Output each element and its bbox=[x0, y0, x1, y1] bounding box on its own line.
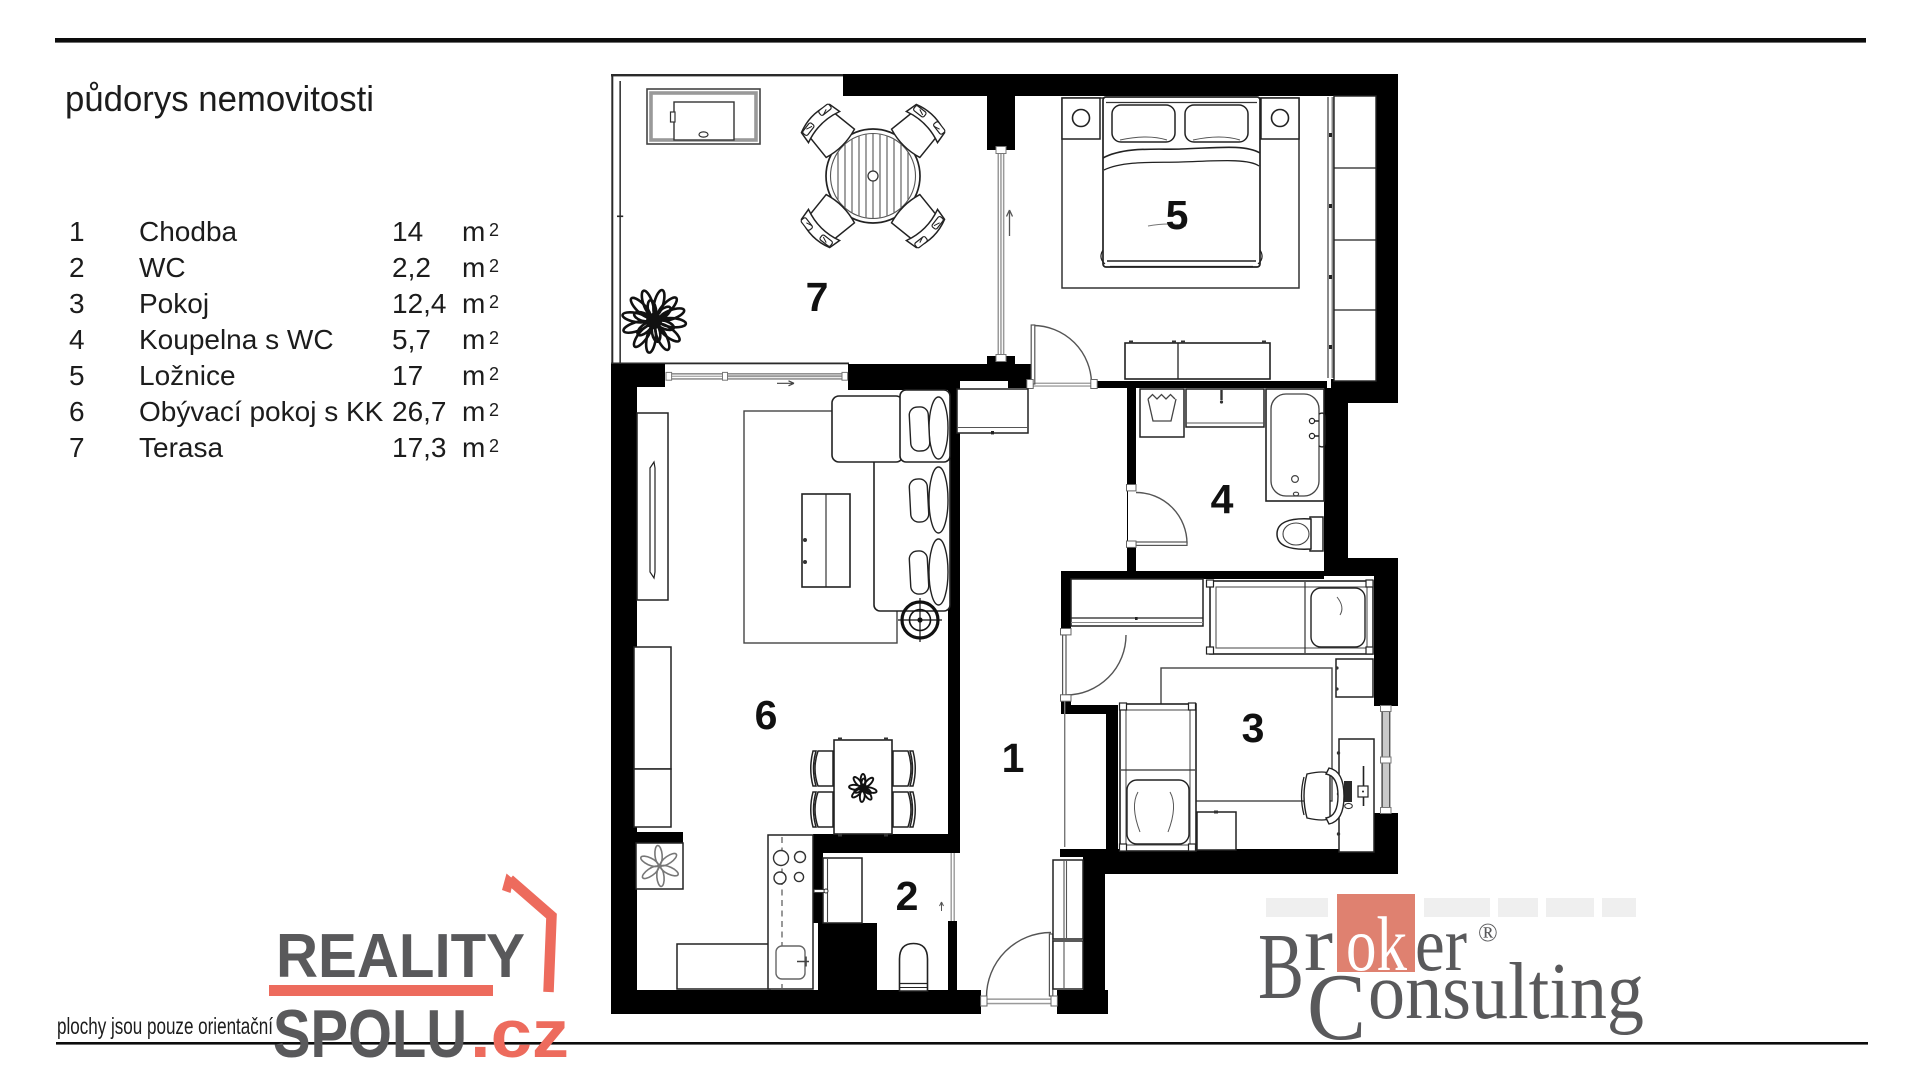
svg-text:4: 4 bbox=[69, 324, 85, 355]
svg-text:17,3: 17,3 bbox=[392, 432, 447, 463]
svg-text:3: 3 bbox=[69, 288, 85, 319]
svg-text:2: 2 bbox=[69, 252, 85, 283]
svg-text:26,7: 26,7 bbox=[392, 396, 447, 427]
svg-text:2: 2 bbox=[896, 873, 919, 919]
svg-text:7: 7 bbox=[69, 432, 85, 463]
svg-text:2: 2 bbox=[489, 364, 499, 384]
svg-text:4: 4 bbox=[1211, 476, 1234, 522]
svg-text:Obývací pokoj s KK: Obývací pokoj s KK bbox=[139, 396, 384, 427]
svg-text:12,4: 12,4 bbox=[392, 288, 447, 319]
svg-text:m: m bbox=[462, 252, 485, 283]
svg-text:2: 2 bbox=[489, 436, 499, 456]
svg-text:1: 1 bbox=[69, 216, 85, 247]
svg-text:m: m bbox=[462, 216, 485, 247]
svg-text:2: 2 bbox=[489, 328, 499, 348]
svg-text:m: m bbox=[462, 324, 485, 355]
svg-text:5,7: 5,7 bbox=[392, 324, 431, 355]
svg-text:m: m bbox=[462, 288, 485, 319]
svg-text:B: B bbox=[1258, 915, 1304, 1019]
svg-text:WC: WC bbox=[139, 252, 186, 283]
svg-text:.cz: .cz bbox=[470, 996, 569, 1072]
svg-text:C: C bbox=[1307, 954, 1366, 1060]
svg-text:5: 5 bbox=[1166, 192, 1189, 238]
svg-text:6: 6 bbox=[755, 692, 778, 738]
svg-text:17: 17 bbox=[392, 360, 423, 391]
svg-text:7: 7 bbox=[806, 274, 829, 320]
svg-text:14: 14 bbox=[392, 216, 423, 247]
svg-text:Terasa: Terasa bbox=[139, 432, 223, 463]
svg-text:plochy jsou pouze orientační: plochy jsou pouze orientační bbox=[57, 1013, 273, 1039]
svg-text:m: m bbox=[462, 432, 485, 463]
svg-text:3: 3 bbox=[1242, 705, 1265, 751]
svg-text:m: m bbox=[462, 396, 485, 427]
svg-text:2: 2 bbox=[489, 220, 499, 240]
svg-text:Koupelna s WC: Koupelna s WC bbox=[139, 324, 334, 355]
svg-text:m: m bbox=[462, 360, 485, 391]
svg-text:SPOLU: SPOLU bbox=[273, 996, 467, 1072]
svg-text:2: 2 bbox=[489, 256, 499, 276]
svg-text:®: ® bbox=[1478, 918, 1498, 947]
svg-text:5: 5 bbox=[69, 360, 85, 391]
svg-text:REALITY: REALITY bbox=[276, 922, 525, 991]
svg-text:2,2: 2,2 bbox=[392, 252, 431, 283]
svg-text:půdorys nemovitosti: půdorys nemovitosti bbox=[65, 78, 374, 119]
svg-text:onsulting: onsulting bbox=[1368, 948, 1644, 1036]
svg-text:2: 2 bbox=[489, 400, 499, 420]
svg-text:2: 2 bbox=[489, 292, 499, 312]
svg-text:6: 6 bbox=[69, 396, 85, 427]
svg-text:Ložnice: Ložnice bbox=[139, 360, 236, 391]
svg-text:Chodba: Chodba bbox=[139, 216, 238, 247]
svg-text:Pokoj: Pokoj bbox=[139, 288, 209, 319]
svg-text:1: 1 bbox=[1002, 735, 1025, 781]
